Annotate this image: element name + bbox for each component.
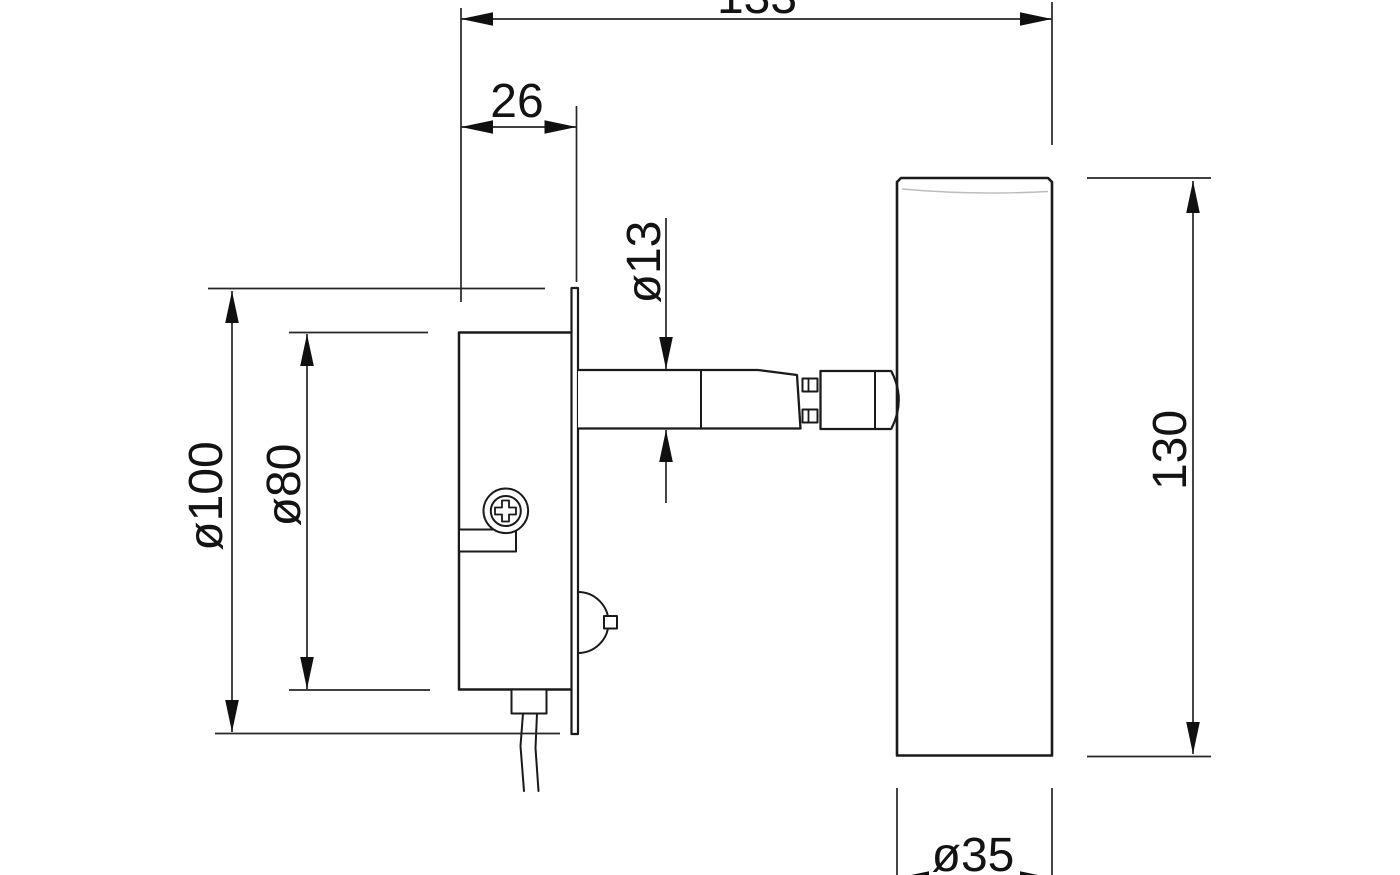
arrow-down (1186, 722, 1200, 754)
arrow-up (225, 291, 239, 323)
hinge-pin-top (803, 379, 818, 392)
cable-left-edge (521, 714, 525, 792)
arrow-right (545, 120, 577, 134)
strain-relief (512, 690, 547, 714)
dim-label-recess-depth: 26 (490, 75, 543, 128)
joint-block (821, 371, 892, 429)
dim-arm-diameter: ø13 (618, 218, 673, 503)
wall-spotlight-drawing: 133 26 ø13 ø100 (0, 0, 1400, 875)
dim-label-box-diameter: ø80 (258, 444, 311, 527)
dim-head-length: 130 (1087, 178, 1211, 757)
hinge-pin-bottom (803, 410, 818, 423)
cable-right-edge (536, 714, 539, 792)
dimensions: 133 26 ø13 ø100 (180, 0, 1211, 875)
lamp-outline (459, 178, 1052, 791)
dim-label-arm-diameter: ø13 (618, 221, 671, 304)
technical-drawing-canvas: 133 26 ø13 ø100 (0, 0, 1400, 875)
arrow-right (1020, 12, 1052, 26)
arrow-down (659, 337, 673, 369)
arrow-left (461, 12, 493, 26)
dim-label-overall-depth: 133 (717, 0, 797, 24)
arrow-up (659, 430, 673, 462)
dim-head-diameter: ø35 (897, 788, 1052, 875)
switch-knob (604, 616, 617, 629)
arrow-up (300, 334, 314, 366)
dim-label-head-length: 130 (1144, 410, 1197, 490)
mounting-screw (484, 489, 529, 534)
arm-tube (578, 370, 801, 429)
hinge-pins (803, 379, 818, 423)
arrow-down (225, 700, 239, 732)
arrow-up (1186, 181, 1200, 213)
wall-plate (572, 288, 579, 734)
arrow-down (300, 657, 314, 689)
dim-label-plate-diameter: ø100 (180, 441, 233, 550)
lamp-head (897, 178, 1052, 756)
arrow-left-cropped (897, 871, 929, 875)
dim-box-diameter: ø80 (258, 333, 430, 691)
dim-recess-depth: 26 (461, 75, 577, 282)
dim-label-head-diameter: ø35 (932, 829, 1015, 875)
arrow-right-cropped (1020, 871, 1052, 875)
arrow-left (461, 120, 493, 134)
